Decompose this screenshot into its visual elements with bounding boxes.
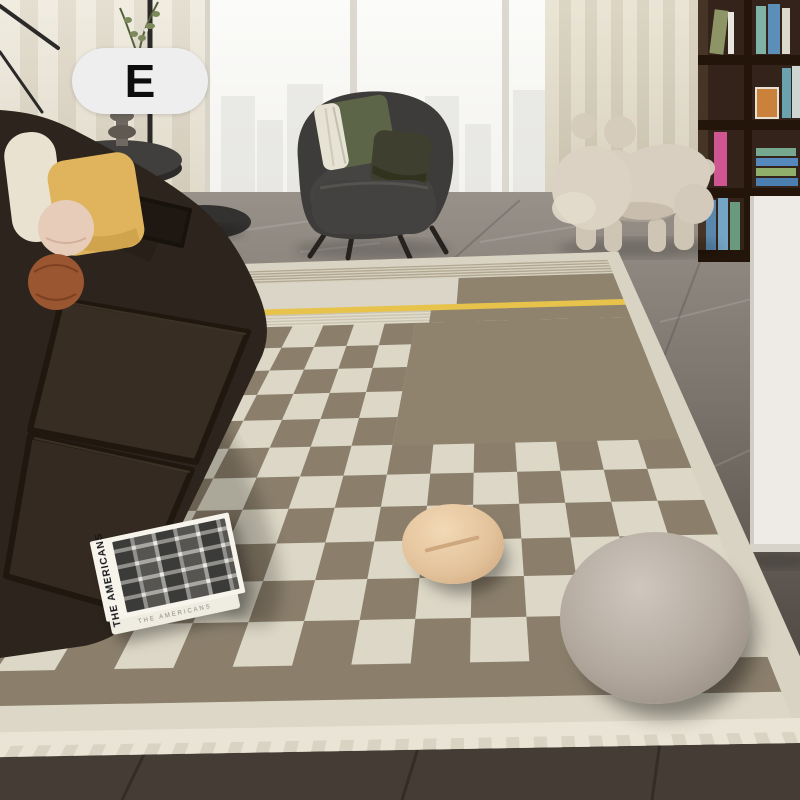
cushion-crease (425, 536, 480, 553)
round-cushion-beige (402, 504, 504, 584)
round-cushion-gray (560, 532, 750, 704)
throw-pillow-rust-ball (28, 254, 84, 310)
throw-pillow-pink-round (38, 200, 94, 256)
variant-badge-label: E (125, 54, 156, 108)
living-room-product-photo: THE AMERICANS THE AMERICANS E (0, 0, 800, 800)
variant-badge[interactable]: E (72, 48, 208, 114)
